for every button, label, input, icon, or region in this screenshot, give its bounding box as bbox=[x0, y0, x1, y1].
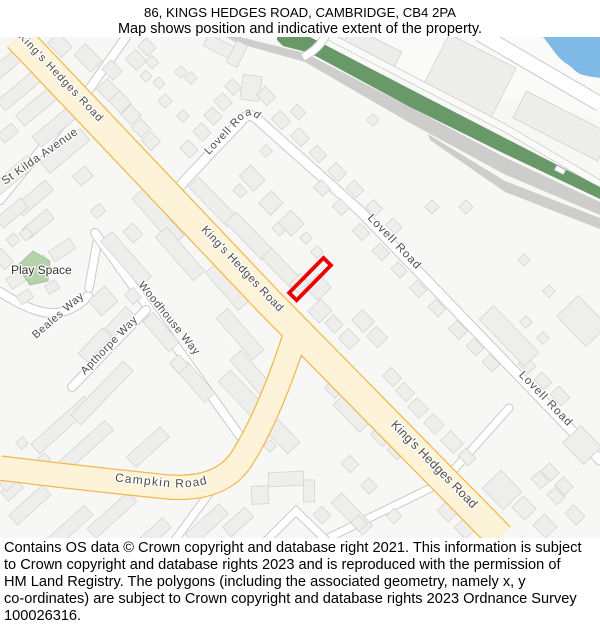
svg-text:Play Space: Play Space bbox=[11, 263, 72, 277]
